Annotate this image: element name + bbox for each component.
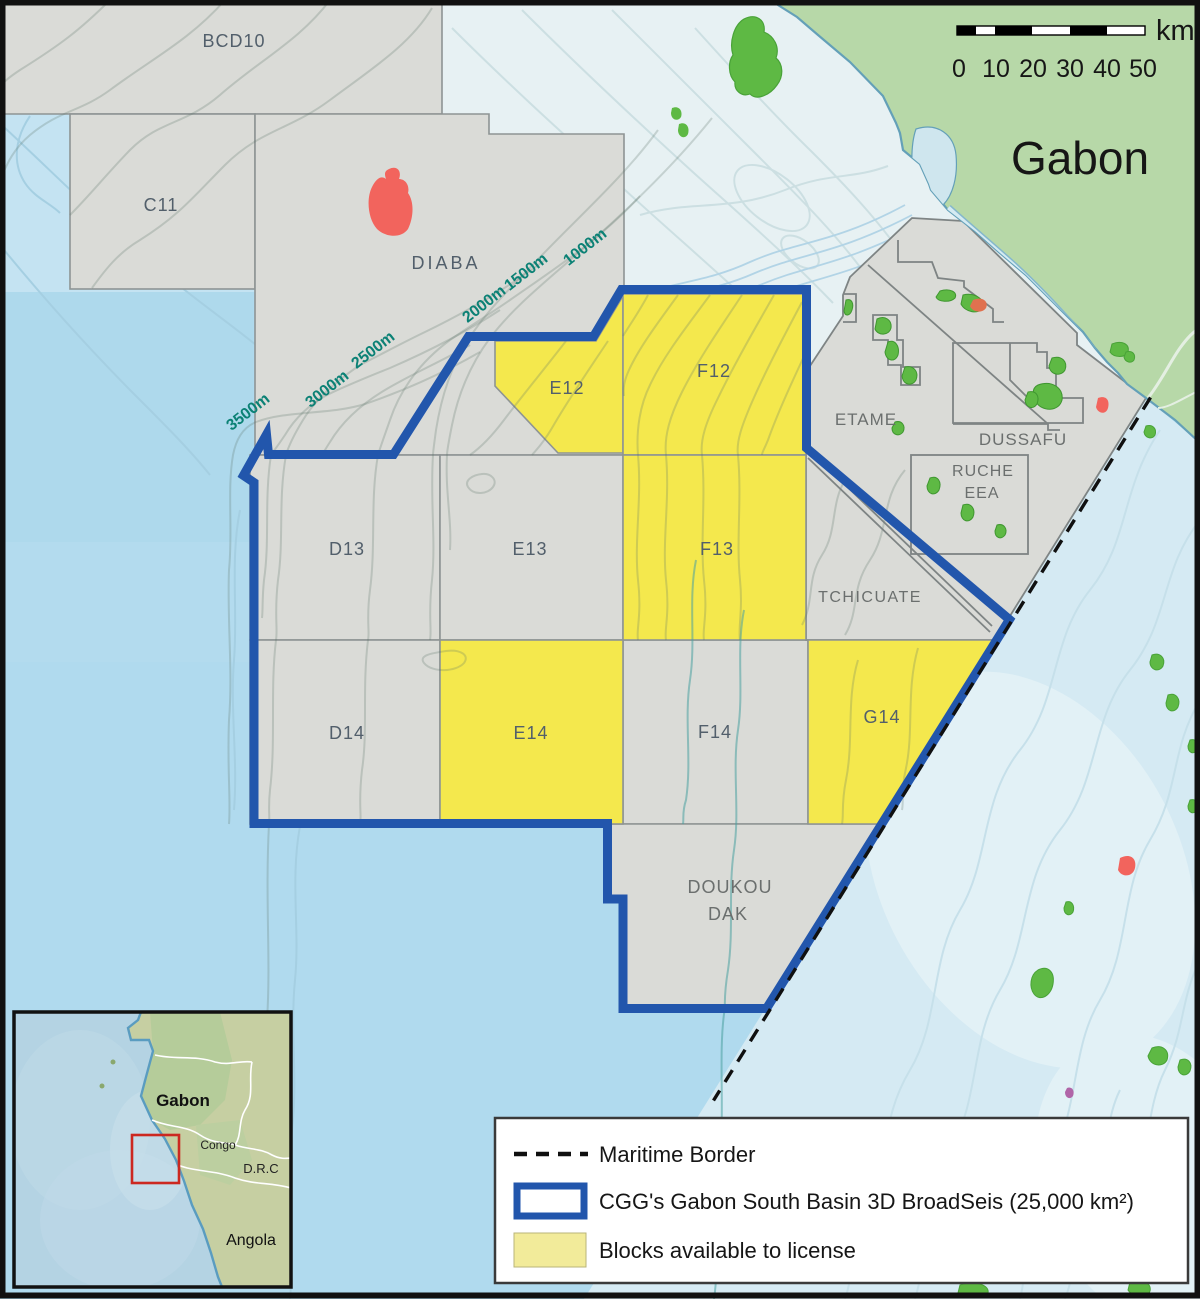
svg-text:RUCHE: RUCHE xyxy=(952,463,1014,480)
svg-text:BCD10: BCD10 xyxy=(202,31,265,51)
svg-text:D13: D13 xyxy=(329,539,365,559)
svg-text:E13: E13 xyxy=(512,539,547,559)
svg-text:Congo: Congo xyxy=(200,1138,236,1152)
svg-text:Gabon: Gabon xyxy=(1011,132,1149,184)
svg-text:D14: D14 xyxy=(329,723,365,743)
svg-text:E12: E12 xyxy=(549,378,584,398)
svg-text:DIABA: DIABA xyxy=(411,253,480,273)
svg-text:F14: F14 xyxy=(698,722,732,742)
svg-text:10: 10 xyxy=(982,55,1010,83)
svg-text:30: 30 xyxy=(1056,55,1084,83)
svg-text:F13: F13 xyxy=(700,539,734,559)
svg-text:50: 50 xyxy=(1129,55,1157,83)
svg-text:EEA: EEA xyxy=(964,485,999,502)
svg-text:G14: G14 xyxy=(863,707,900,727)
svg-text:TCHICUATE: TCHICUATE xyxy=(818,589,922,606)
svg-text:20: 20 xyxy=(1019,55,1047,83)
svg-text:F12: F12 xyxy=(697,361,731,381)
svg-text:0: 0 xyxy=(952,55,966,83)
svg-text:ETAME: ETAME xyxy=(835,410,897,429)
svg-text:DAK: DAK xyxy=(708,904,748,924)
svg-text:DOUKOU: DOUKOU xyxy=(687,877,772,897)
svg-text:Gabon: Gabon xyxy=(156,1091,210,1110)
svg-text:Maritime Border: Maritime Border xyxy=(599,1142,755,1167)
svg-text:km: km xyxy=(1156,15,1195,47)
svg-text:DUSSAFU: DUSSAFU xyxy=(979,430,1067,449)
svg-text:Blocks available to license: Blocks available to license xyxy=(599,1238,856,1263)
svg-text:C11: C11 xyxy=(144,195,179,215)
svg-text:40: 40 xyxy=(1093,55,1121,83)
svg-text:Angola: Angola xyxy=(226,1232,276,1249)
svg-text:D.R.C: D.R.C xyxy=(243,1161,278,1176)
svg-text:CGG's Gabon South Basin 3D Bro: CGG's Gabon South Basin 3D BroadSeis (25… xyxy=(599,1189,1134,1214)
svg-text:E14: E14 xyxy=(513,723,548,743)
